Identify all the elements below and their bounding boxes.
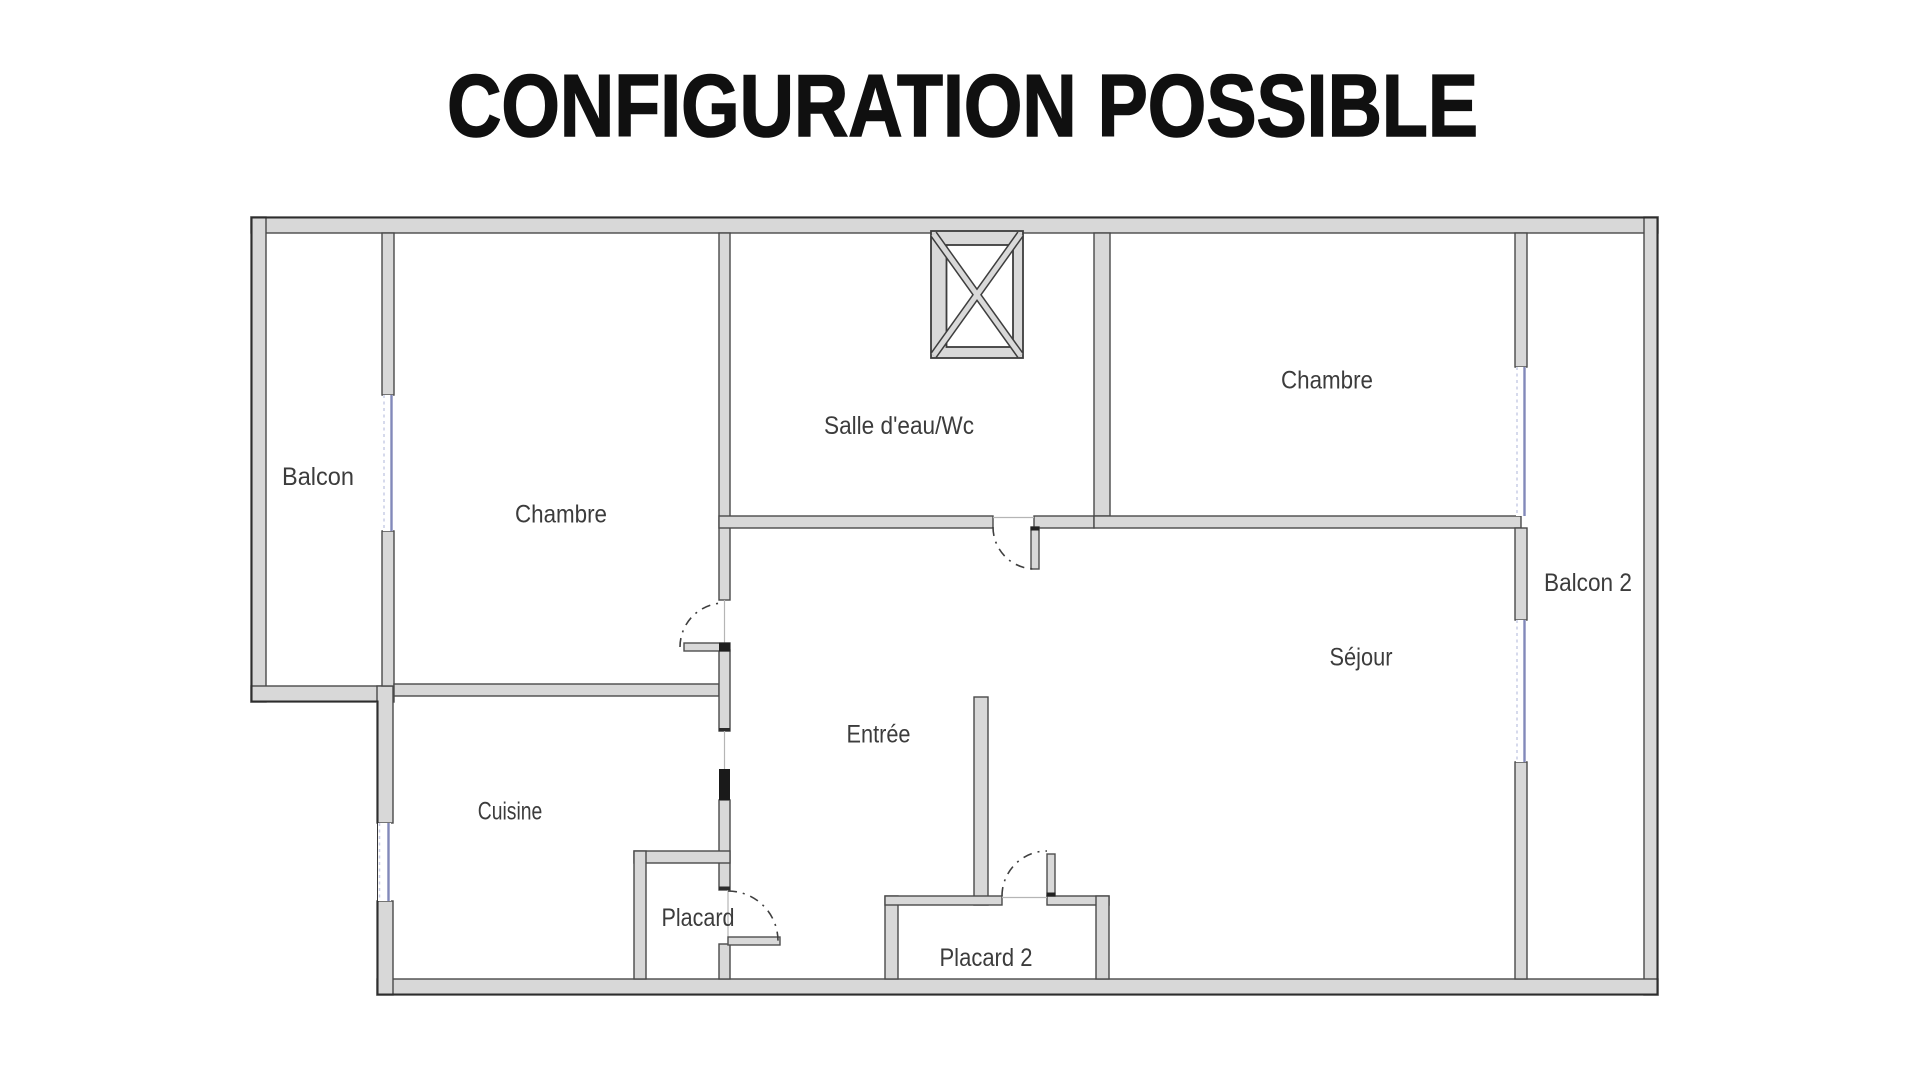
svg-text:Balcon: Balcon (282, 463, 354, 491)
svg-text:CONFIGURATION POSSIBLE: CONFIGURATION POSSIBLE (447, 58, 1478, 156)
svg-text:Balcon 2: Balcon 2 (1544, 569, 1632, 597)
svg-text:Cuisine: Cuisine (478, 798, 543, 826)
svg-text:Chambre: Chambre (515, 501, 607, 529)
svg-text:Salle d'eau/Wc: Salle d'eau/Wc (824, 412, 974, 440)
svg-text:Placard: Placard (662, 904, 735, 932)
svg-text:Entrée: Entrée (847, 721, 911, 749)
svg-text:Chambre: Chambre (1281, 367, 1373, 395)
svg-text:Séjour: Séjour (1330, 644, 1393, 672)
svg-text:Placard 2: Placard 2 (940, 944, 1033, 972)
